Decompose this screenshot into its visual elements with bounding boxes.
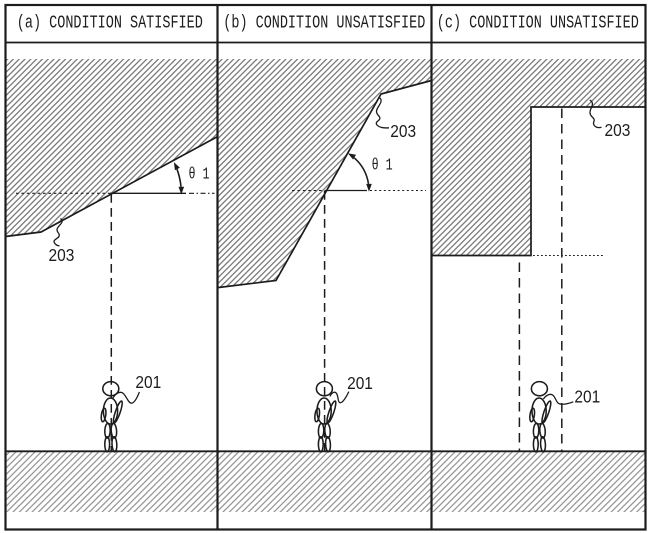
svg-text:(b) CONDITION UNSATISFIED: (b) CONDITION UNSATISFIED (223, 13, 425, 34)
svg-text:201: 201 (135, 372, 161, 392)
svg-text:203: 203 (605, 120, 631, 140)
svg-text:(c) CONDITION UNSATISFIED: (c) CONDITION UNSATISFIED (437, 13, 639, 34)
svg-text:(a) CONDITION SATISFIED: (a) CONDITION SATISFIED (17, 13, 203, 34)
svg-text:203: 203 (390, 121, 416, 141)
svg-text:203: 203 (49, 245, 75, 265)
svg-text:θ 1: θ 1 (189, 165, 210, 184)
svg-text:201: 201 (347, 373, 373, 393)
svg-text:θ 1: θ 1 (372, 156, 393, 175)
svg-text:201: 201 (574, 387, 600, 407)
